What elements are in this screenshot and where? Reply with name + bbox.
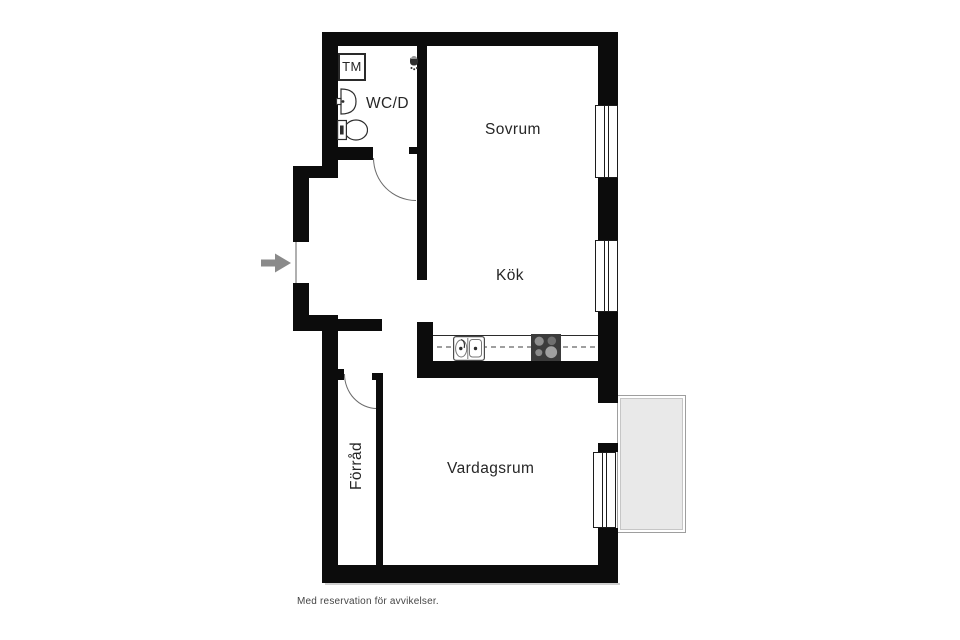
wall-kitchen-bottom (433, 360, 598, 378)
window-pane (602, 453, 607, 527)
balcony (617, 395, 686, 533)
label-wc: WC/D (366, 95, 409, 113)
wall-right-mid (598, 312, 618, 403)
label-bedroom: Sovrum (485, 121, 541, 139)
wall-hall-kitchen-divider (417, 46, 427, 280)
wall-right-balcony-stub (598, 443, 618, 452)
kitchen-sink-icon (453, 336, 485, 361)
wall-left-above-entry (293, 178, 309, 242)
shower-icon (406, 55, 422, 72)
wall-wc-door-stub (409, 147, 417, 154)
wall-shadow (325, 583, 620, 585)
wall-right-between-windows (598, 178, 618, 240)
washing-machine-label: TM (342, 59, 362, 74)
wc-door-swing (373, 158, 416, 201)
wall-left-jog (293, 166, 322, 178)
label-kitchen: Kök (496, 267, 524, 285)
window-bedroom (595, 105, 618, 178)
washbasin-icon (336, 88, 357, 115)
footer-disclaimer: Med reservation för avvikelser. (297, 596, 439, 607)
entrance-door (295, 242, 297, 283)
wall-right-lower (598, 528, 618, 565)
window-living-room (593, 452, 616, 528)
balcony-slab (620, 398, 683, 530)
label-storage: Förråd (348, 421, 366, 511)
wall-storage-door-stub (338, 369, 344, 380)
wall-bottom (322, 565, 618, 583)
wall-hall-bottom (293, 315, 338, 331)
window-kitchen (595, 240, 618, 312)
window-pane (604, 106, 609, 177)
wall-storage-inner (376, 373, 383, 565)
entry-arrow-icon (260, 250, 292, 276)
wall-right-upper (598, 32, 618, 105)
wall-hall-bottom-thin (338, 319, 382, 331)
washing-machine: TM (338, 53, 366, 81)
toilet-icon (337, 119, 368, 141)
floor-plan: TM WC/D Sovrum Kök Förråd Varda (0, 0, 960, 640)
wall-left-lower (322, 331, 338, 565)
wall-top (322, 32, 618, 46)
wall-left-below-entry (293, 283, 309, 315)
label-living-room: Vardagsrum (447, 460, 534, 478)
wall-wc-bottom (322, 147, 373, 160)
window-pane (604, 241, 609, 311)
stove-icon (531, 334, 561, 361)
wall-kitchen-stub (417, 322, 433, 378)
